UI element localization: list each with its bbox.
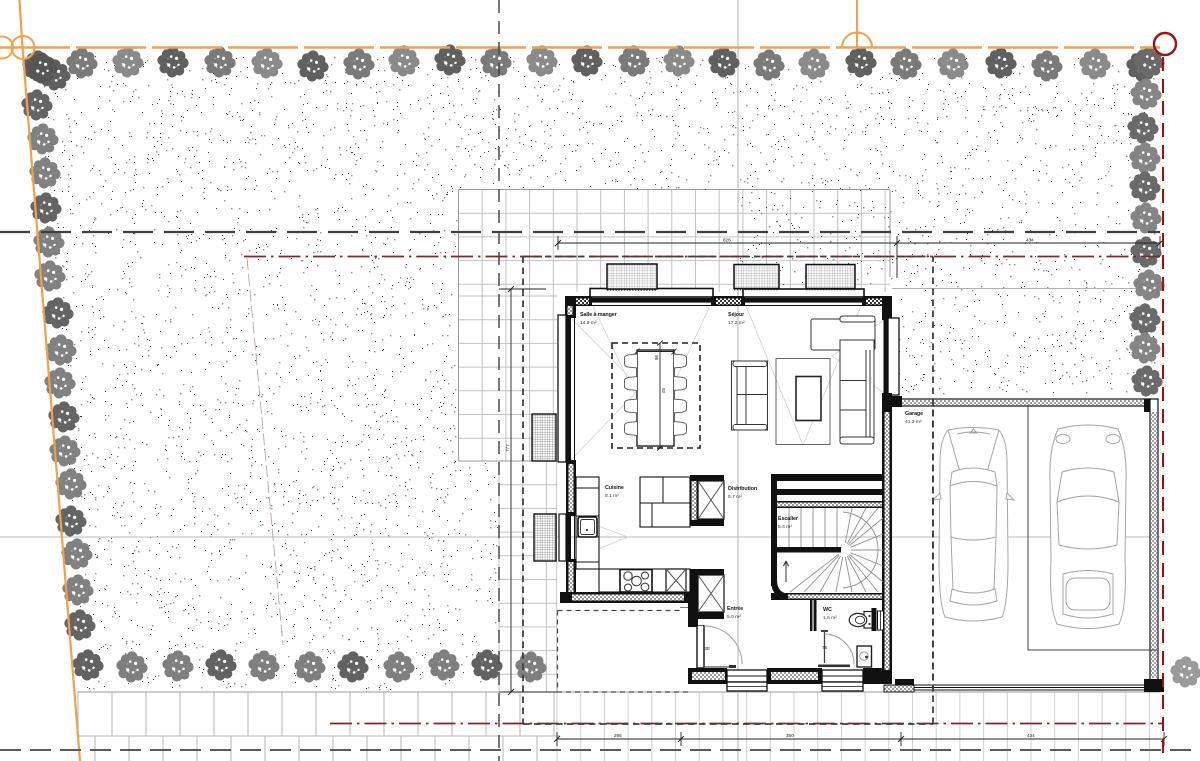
svg-text:434: 434 — [1027, 733, 1035, 738]
svg-text:5.4 m²: 5.4 m² — [778, 524, 792, 530]
svg-text:92: 92 — [661, 388, 666, 394]
svg-text:Salle à manger: Salle à manger — [580, 312, 618, 318]
svg-text:WC: WC — [823, 607, 832, 613]
svg-text:8.1 m²: 8.1 m² — [605, 493, 619, 499]
svg-text:17.2 m²: 17.2 m² — [728, 320, 745, 326]
svg-text:434: 434 — [1026, 238, 1034, 243]
svg-text:1.6 m²: 1.6 m² — [823, 615, 837, 621]
svg-text:Cuisine: Cuisine — [605, 485, 624, 491]
svg-text:Escalier: Escalier — [778, 516, 799, 522]
svg-text:96: 96 — [654, 355, 659, 361]
svg-text:826: 826 — [723, 238, 731, 243]
svg-text:14.9 m²: 14.9 m² — [580, 320, 597, 326]
svg-text:Entrée: Entrée — [727, 606, 743, 612]
svg-text:350: 350 — [786, 733, 794, 738]
svg-text:5.0 m²: 5.0 m² — [727, 614, 741, 620]
svg-text:777: 777 — [505, 444, 510, 452]
svg-text:5.7 m²: 5.7 m² — [728, 494, 742, 500]
svg-text:2E: 2E — [705, 646, 711, 651]
svg-text:296: 296 — [614, 733, 622, 738]
svg-text:41.3 m²: 41.3 m² — [905, 419, 922, 425]
svg-text:Garage: Garage — [905, 411, 923, 417]
svg-text:76: 76 — [822, 645, 828, 650]
svg-text:Distribution: Distribution — [728, 486, 757, 492]
svg-text:Séjour: Séjour — [728, 312, 745, 318]
